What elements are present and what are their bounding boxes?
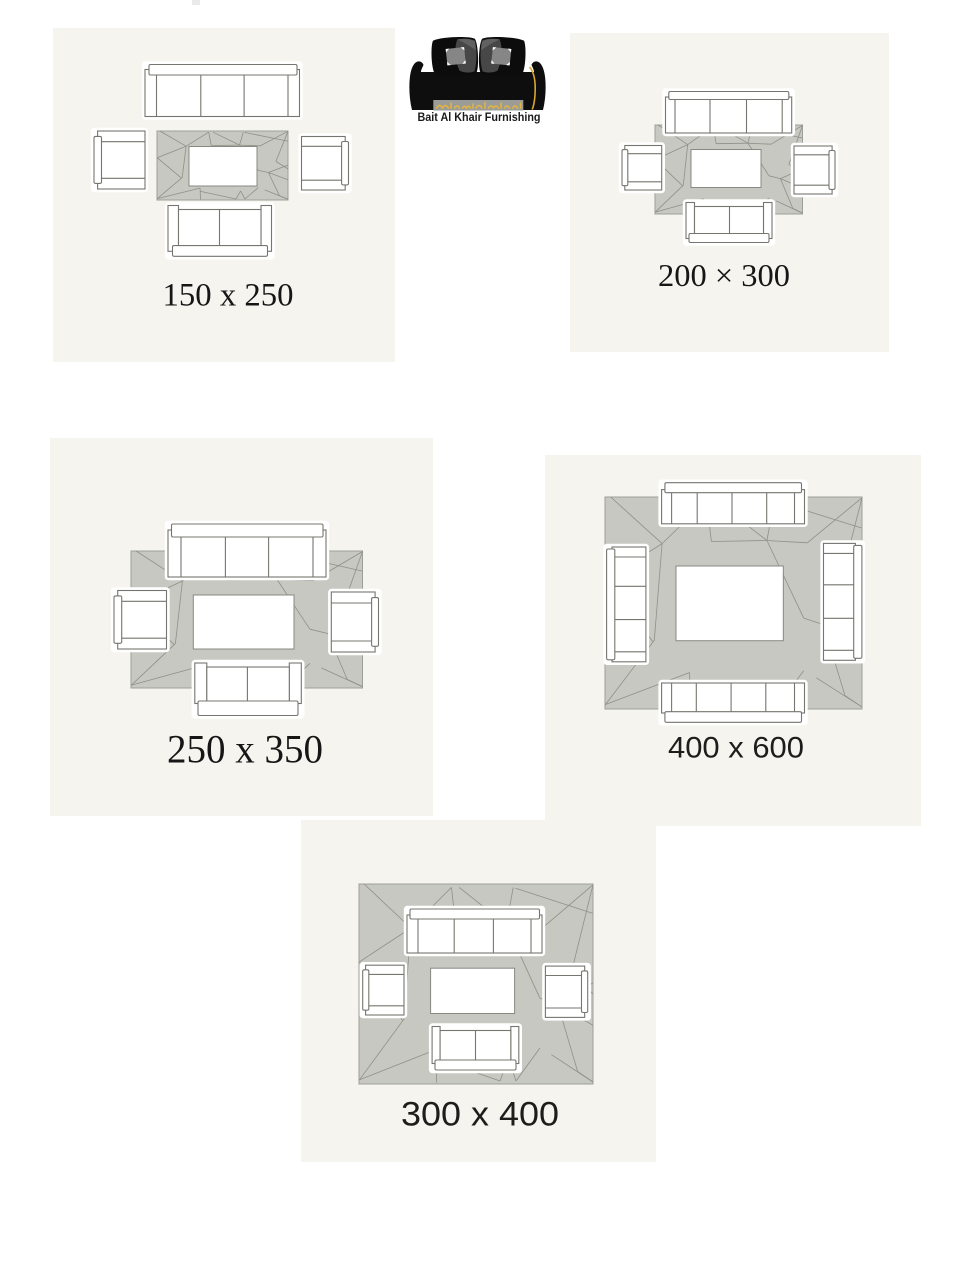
svg-text:250 x 350: 250 x 350 <box>167 727 323 772</box>
svg-text:400 x 600: 400 x 600 <box>668 732 804 765</box>
svg-text:Bait Al Khair Furnishing: Bait Al Khair Furnishing <box>418 110 541 124</box>
svg-text:200 × 300: 200 × 300 <box>658 257 790 293</box>
svg-text:300 x 400: 300 x 400 <box>401 1096 559 1134</box>
svg-text:150 x 250: 150 x 250 <box>163 278 294 314</box>
